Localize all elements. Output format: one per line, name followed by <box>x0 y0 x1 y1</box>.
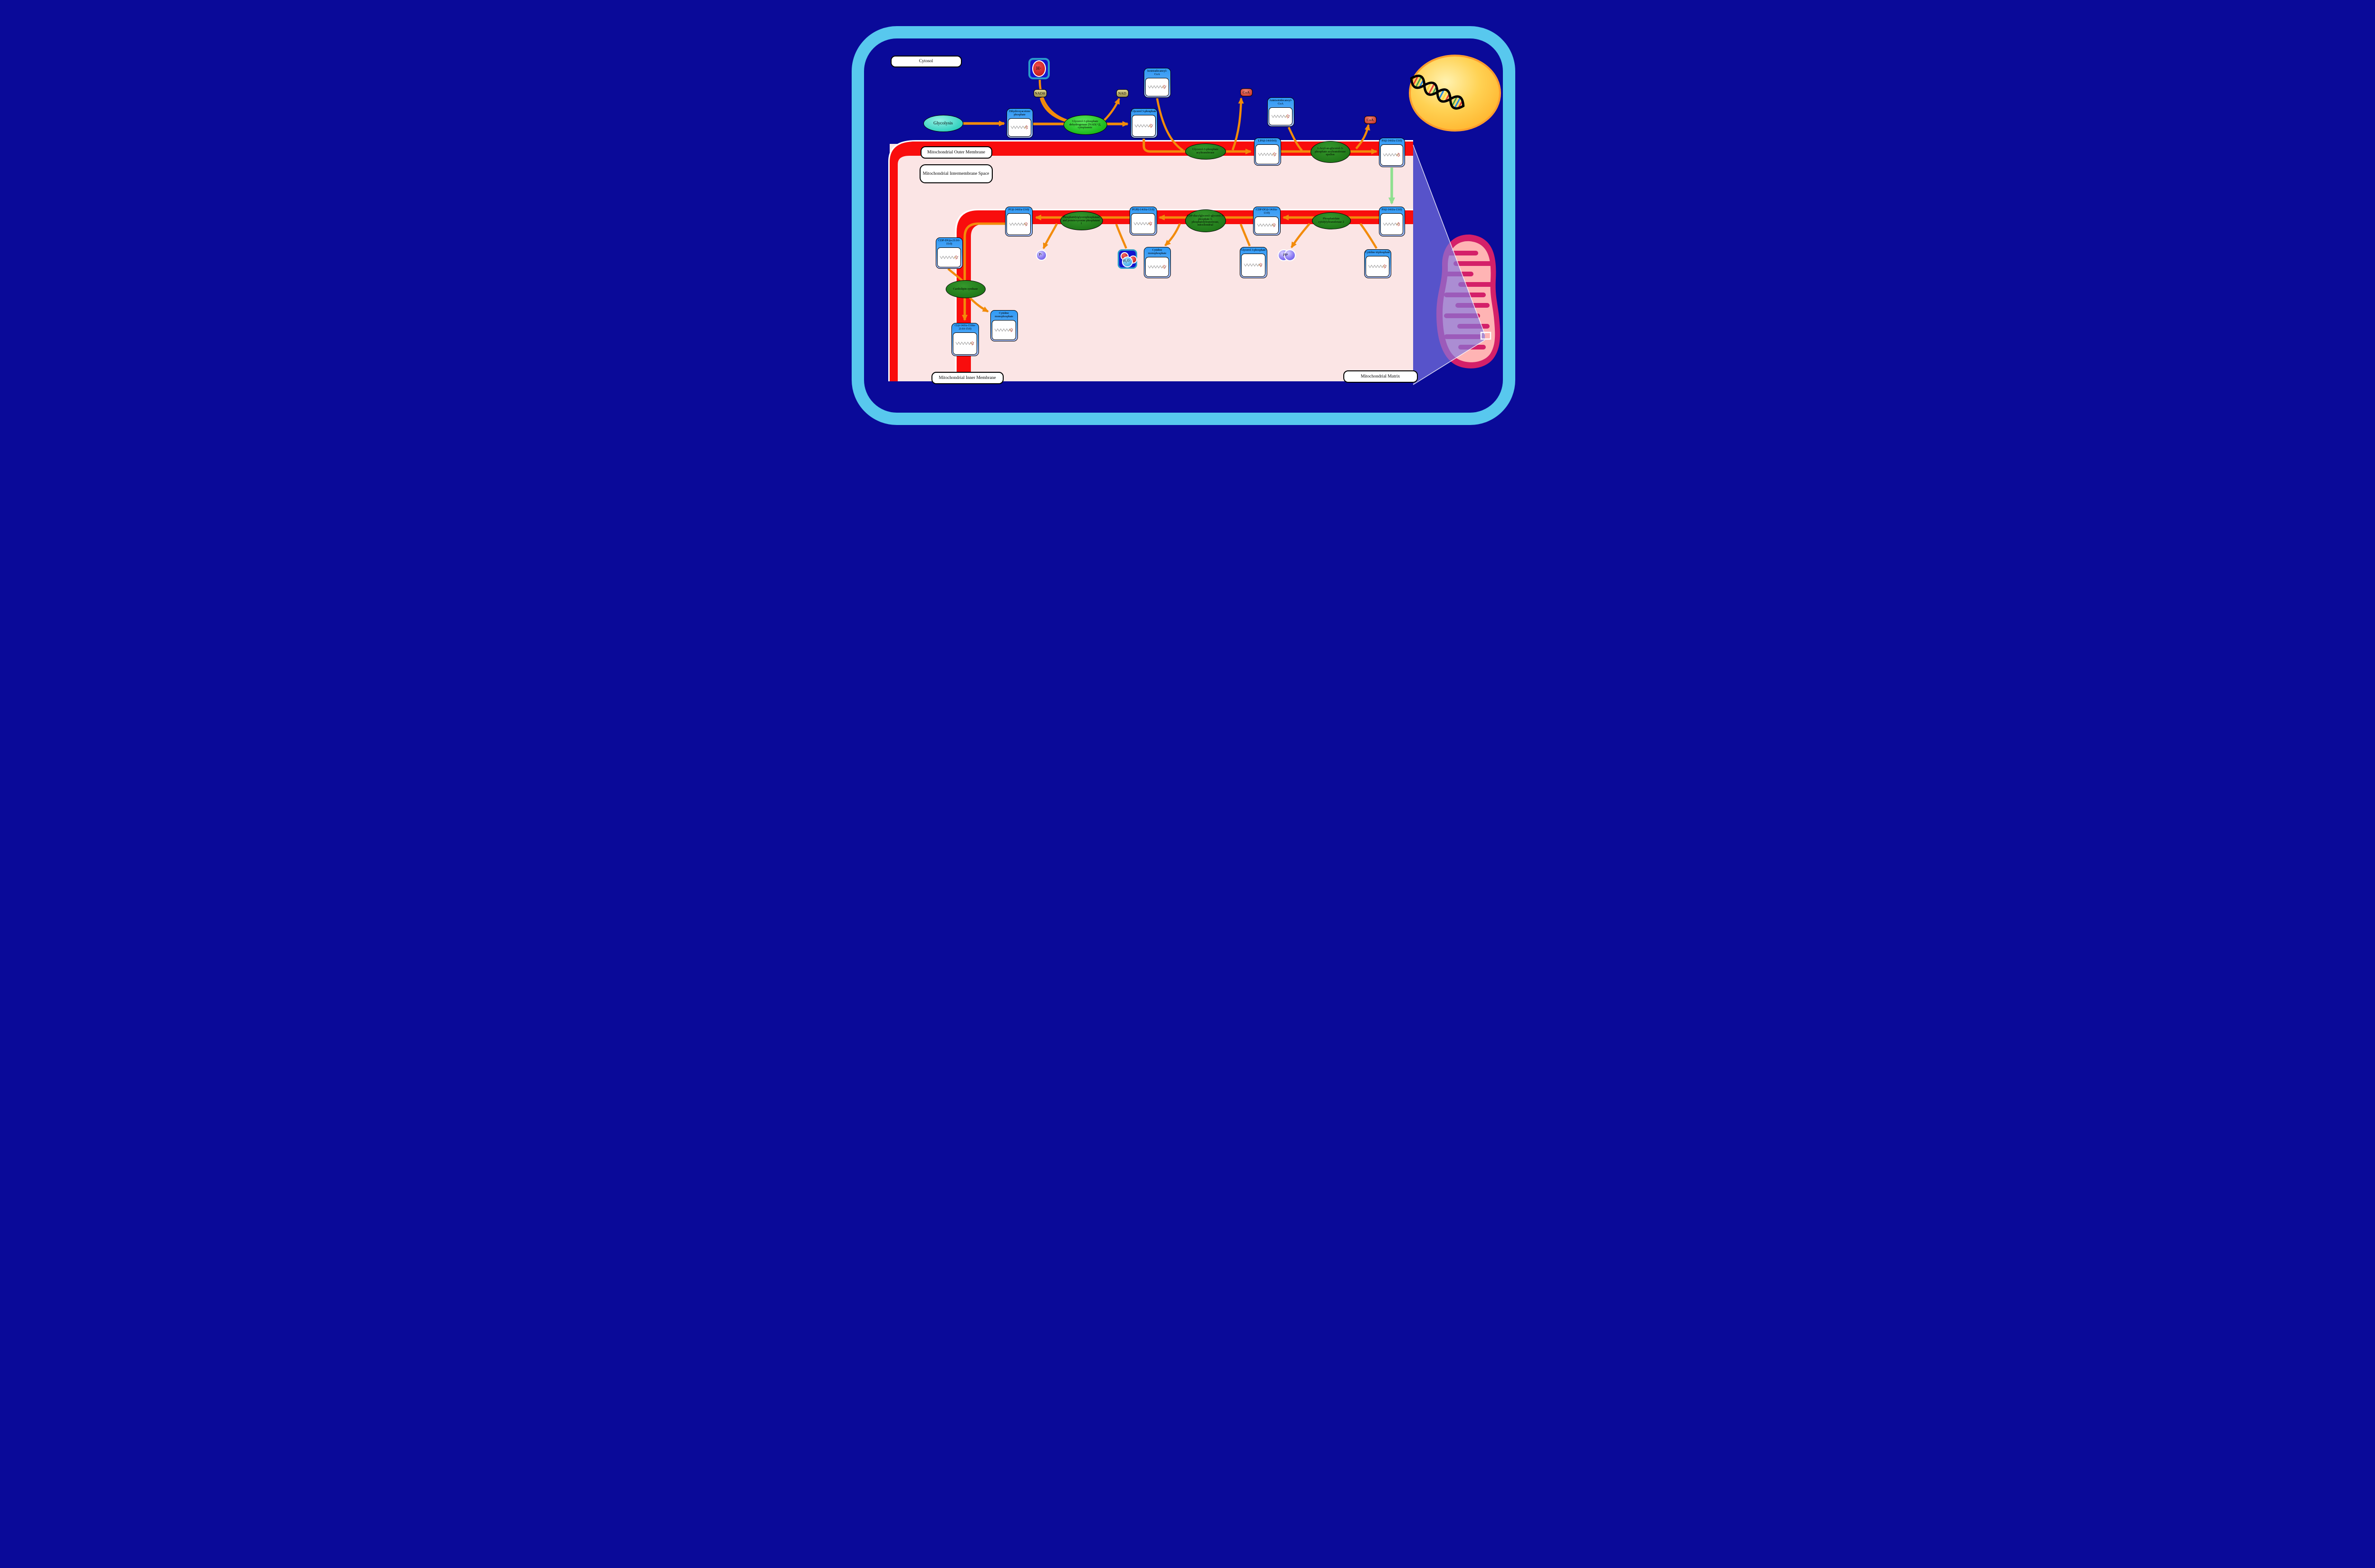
metabolite-card-pa_inner[interactable]: PA(i-14:0/a-13:0) <box>1379 207 1405 236</box>
metabolite-label: Cytidine monophosphate <box>991 311 1017 319</box>
enzyme-pct2[interactable]: Phosphatidate cytidylyltransferase 2 <box>1312 212 1351 229</box>
metabolite-structure <box>1145 257 1169 276</box>
enzyme-label: Glycerol-3-phosphate acyltransferase <box>1187 148 1224 155</box>
metabolite-label: Glycerol 3-phosphate <box>1131 109 1157 113</box>
metabolite-label: CL(i-14:0/a-13:0/a-21:0/i-15:0) <box>952 323 978 331</box>
metabolite-label: CDP-DG(i-14:0/a-13:0) <box>1254 207 1280 216</box>
metabolite-card-anteiso[interactable]: Anteisotridecanoyl-CoA <box>1267 97 1294 127</box>
metabolite-structure <box>1008 118 1031 136</box>
molecule-structure-icon <box>1132 219 1154 228</box>
metabolite-card-ctp[interactable]: Cytidine triphosphate <box>1364 249 1391 278</box>
cofactor-nad[interactable]: NAD <box>1116 89 1129 97</box>
cofactor-h2o[interactable]: H2O <box>1118 249 1137 269</box>
process-node-glycolysis[interactable]: Glycolysis <box>923 115 963 132</box>
enzyme-label: Phosphatidate cytidylyltransferase 2 <box>1314 217 1349 224</box>
metabolite-label: PA(i-14:0/a-13:0) <box>1379 138 1405 143</box>
metabolite-label: Cytidine triphosphate <box>1365 250 1391 255</box>
metabolite-label: Isotetradecanoyl-CoA <box>1144 68 1170 77</box>
metabolite-card-cmp_mid[interactable]: Cytidine monophosphate <box>1144 247 1171 278</box>
molecule-structure-icon <box>1382 220 1402 228</box>
metabolite-structure <box>1254 217 1279 234</box>
metabolite-card-cdp_dg_left[interactable]: CDP-DG(a-21:0/i-15:0) <box>936 237 963 269</box>
molecule-structure-icon <box>1147 263 1168 271</box>
metabolite-structure <box>953 332 977 355</box>
molecule-structure-icon <box>1270 112 1292 121</box>
enzyme-gpat[interactable]: Glycerol-3-phosphate acyltransferase <box>1185 143 1226 160</box>
compartment-label-cytosol: Cytosol <box>891 56 962 67</box>
cofactor-coa2[interactable]: CoA <box>1364 116 1377 124</box>
metabolite-structure <box>1380 213 1403 235</box>
molecule-structure-icon <box>1243 261 1264 269</box>
molecule-structure-icon <box>1008 220 1030 228</box>
metabolite-label: PA(i-14:0/a-13:0) <box>1379 207 1405 212</box>
cofactor-coa1[interactable]: CoA <box>1240 88 1253 96</box>
metabolite-structure <box>1007 213 1031 235</box>
metabolite-card-pa_outer[interactable]: PA(i-14:0/a-13:0) <box>1379 138 1405 167</box>
proton-icon: H+ <box>1032 60 1046 77</box>
enzyme-label: 1-Acyl-sn-glycerol-3-phosphate acyltrans… <box>1312 147 1349 157</box>
metabolite-structure <box>1269 107 1292 125</box>
metabolite-card-lpa[interactable]: LPA(i-14:0/0:0) <box>1254 138 1281 166</box>
enzyme-label: Phosphatidylglycerophosphatase and prote… <box>1062 216 1101 225</box>
molecule-structure-icon <box>939 253 960 262</box>
enzyme-agpat[interactable]: 1-Acyl-sn-glycerol-3-phosphate acyltrans… <box>1311 141 1350 163</box>
metabolite-structure <box>1241 254 1265 277</box>
molecule-structure-icon <box>1257 150 1278 159</box>
molecule-structure-icon <box>1133 122 1155 130</box>
molecule-structure-icon <box>1367 262 1388 271</box>
metabolite-card-dhap[interactable]: Dihydroxyacetone phosphate <box>1007 108 1033 138</box>
metabolite-card-g3p_bottom[interactable]: Glycerol 3-phosphate <box>1240 247 1267 278</box>
enzyme-label: Cardiolipin synthase <box>953 288 978 291</box>
metabolite-structure <box>1380 144 1403 166</box>
metabolite-label: Cytidine monophosphate <box>1144 247 1170 256</box>
cofactor-hplus[interactable]: H+ <box>1028 58 1050 79</box>
compartment-label-matrix: Mitochondrial Matrix <box>1343 370 1418 383</box>
cofactor-pi[interactable]: Pi <box>1036 250 1045 259</box>
molecule-structure-icon <box>1382 151 1402 159</box>
metabolite-structure <box>1145 78 1169 96</box>
enzyme-label: Glycerol-3-phosphate dehydrogenase [NAD(… <box>1065 120 1105 130</box>
enzyme-cls[interactable]: Cardiolipin synthase <box>946 280 986 298</box>
metabolite-card-pgp[interactable]: PGP(i-14:0/a-13:0) <box>1130 207 1157 236</box>
compartment-label-inner-membrane: Mitochondrial Inner Membrane <box>931 372 1004 384</box>
molecule-structure-icon <box>1147 83 1168 91</box>
metabolite-structure <box>937 247 961 267</box>
metabolite-label: Anteisotridecanoyl-CoA <box>1268 98 1294 106</box>
cofactor-nadh[interactable]: NADH <box>1034 89 1047 97</box>
metabolite-structure <box>1132 115 1156 137</box>
metabolite-card-pg[interactable]: PG(i-14:0/a-13:0) <box>1005 207 1033 236</box>
compartment-label-outer-membrane: Mitochondrial Outer Membrane <box>921 146 992 159</box>
metabolite-structure <box>992 320 1016 340</box>
metabolite-structure <box>1366 256 1389 277</box>
molecule-structure-icon <box>1256 221 1278 229</box>
cofactor-ppi[interactable]: PPi <box>1278 249 1294 260</box>
metabolite-label: LPA(i-14:0/0:0) <box>1254 138 1281 143</box>
enzyme-gpd[interactable]: Glycerol-3-phosphate dehydrogenase [NAD(… <box>1064 115 1107 135</box>
pathway-diagram: Dihydroxyacetone phosphate Glycerol 3-ph… <box>821 0 1555 449</box>
molecule-structure-icon <box>993 326 1015 334</box>
metabolite-structure <box>1255 144 1279 164</box>
metabolite-card-cmp_bottom[interactable]: Cytidine monophosphate <box>990 310 1018 341</box>
metabolite-card-iso[interactable]: Isotetradecanoyl-CoA <box>1144 68 1171 98</box>
enzyme-label: CDP-diacylglycerol--glycerol-3-phosphate… <box>1187 215 1224 227</box>
compartment-label-intermembrane-space: Mitochondrial Intermembrane Space <box>920 164 993 183</box>
enzyme-pgpp[interactable]: Phosphatidylglycerophosphatase and prote… <box>1060 211 1103 230</box>
metabolite-structure <box>1131 213 1155 234</box>
metabolite-label: PGP(i-14:0/a-13:0) <box>1130 207 1157 212</box>
metabolite-label: PG(i-14:0/a-13:0) <box>1006 207 1032 212</box>
metabolite-label: Dihydroxyacetone phosphate <box>1007 109 1033 117</box>
enzyme-cdgpt[interactable]: CDP-diacylglycerol--glycerol-3-phosphate… <box>1185 209 1226 232</box>
metabolite-label: Glycerol 3-phosphate <box>1240 247 1267 252</box>
metabolite-card-cl[interactable]: CL(i-14:0/a-13:0/a-21:0/i-15:0) <box>951 323 979 356</box>
molecule-structure-icon <box>954 339 976 348</box>
metabolite-label: CDP-DG(a-21:0/i-15:0) <box>936 238 962 246</box>
molecule-structure-icon <box>1009 123 1030 132</box>
metabolite-card-cdp_dg_mid[interactable]: CDP-DG(i-14:0/a-13:0) <box>1253 207 1281 236</box>
metabolite-card-g3p_top[interactable]: Glycerol 3-phosphate <box>1130 108 1158 138</box>
